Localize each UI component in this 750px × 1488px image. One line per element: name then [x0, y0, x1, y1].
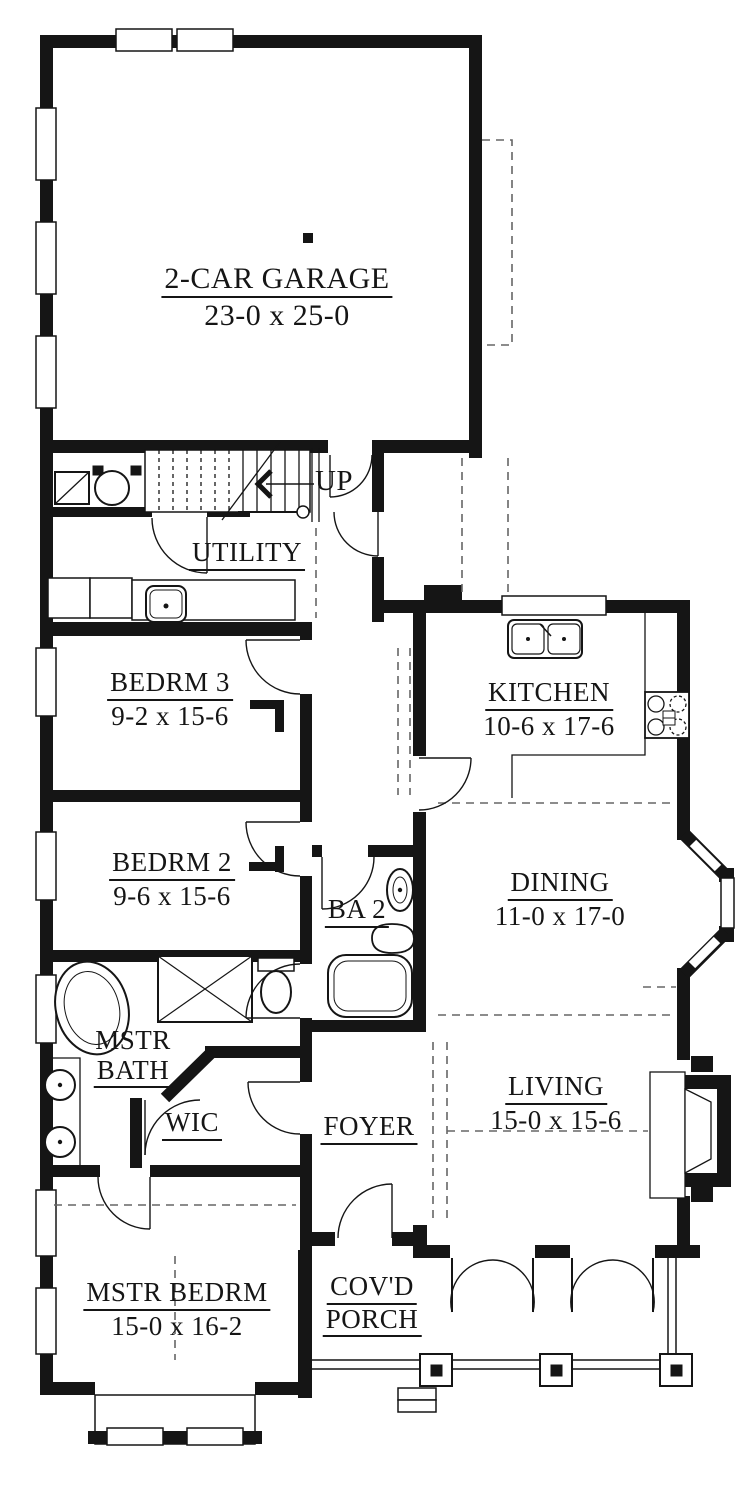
room-label-foyer: FOYER: [320, 1112, 417, 1145]
room-label-living: LIVING 15-0 x 15-6: [490, 1072, 621, 1135]
room-name: DINING: [508, 868, 613, 901]
room-label-garage: 2-CAR GARAGE 23-0 x 25-0: [161, 262, 392, 332]
room-dims: 15-0 x 16-2: [83, 1311, 270, 1342]
room-name: BA 2: [325, 895, 389, 928]
newel-post: [297, 506, 309, 518]
room-name: FOYER: [320, 1112, 417, 1145]
left-window: [36, 336, 56, 408]
washer-icon: [55, 472, 89, 504]
room-label-bedrm3: BEDRM 3 9-2 x 15-6: [107, 668, 233, 731]
room-label-ba2: BA 2: [325, 895, 389, 928]
mstr-bedrm-bay: [88, 1395, 262, 1445]
room-name-line2: PORCH: [323, 1305, 422, 1338]
left-window: [36, 108, 56, 180]
room-name: 2-CAR GARAGE: [161, 262, 392, 298]
porch-steps: [398, 1388, 436, 1412]
floor-plan-drawing: [0, 0, 750, 1488]
up-text: UP: [315, 465, 353, 497]
ba2-toilet-icon: [372, 924, 414, 953]
left-window: [36, 832, 56, 900]
room-label-mstr-bath: MSTR BATH: [94, 1026, 173, 1088]
room-dims: 10-6 x 17-6: [483, 711, 614, 742]
room-label-wic: WIC: [162, 1108, 222, 1141]
room-name: UTILITY: [189, 538, 305, 571]
mstr-toilet-icon: [258, 958, 294, 1013]
left-window: [36, 975, 56, 1043]
room-name: MSTR BEDRM: [83, 1278, 270, 1311]
room-dims: 15-0 x 15-6: [490, 1105, 621, 1136]
background: [0, 0, 750, 1488]
room-label-dining: DINING 11-0 x 17-0: [495, 868, 625, 931]
left-window: [36, 222, 56, 294]
staircase: [145, 442, 319, 522]
room-name-line2: BATH: [94, 1056, 173, 1089]
utility-sink-icon: [146, 586, 186, 622]
room-label-mstr-bedrm: MSTR BEDRM 15-0 x 16-2: [83, 1278, 270, 1341]
room-name: LIVING: [505, 1072, 607, 1105]
garage-window-top-2: [177, 29, 233, 51]
room-dims: 9-6 x 15-6: [109, 881, 235, 912]
range-icon: [645, 692, 689, 738]
kitchen-sink-icon: [508, 620, 582, 658]
room-name-line1: MSTR: [95, 1025, 171, 1055]
garage-window-top-1: [116, 29, 172, 51]
room-label-bedrm2: BEDRM 2 9-6 x 15-6: [109, 848, 235, 911]
kitchen-window: [502, 596, 606, 615]
shower-icon: [158, 956, 252, 1022]
room-dims: 9-2 x 15-6: [107, 701, 233, 732]
left-window: [36, 1288, 56, 1354]
floor-plan: 2-CAR GARAGE 23-0 x 25-0 UP UTILITY BEDR…: [0, 0, 750, 1488]
room-name: WIC: [162, 1108, 222, 1141]
room-name-line1: COV'D: [327, 1272, 417, 1305]
ba2-sink-icon: [387, 869, 413, 911]
room-name: BEDRM 3: [107, 668, 233, 701]
room-label-porch: COV'D PORCH: [323, 1272, 422, 1337]
room-label-utility: UTILITY: [189, 538, 305, 571]
stair-up-label: UP: [315, 466, 353, 498]
room-name: BEDRM 2: [109, 848, 235, 881]
left-window: [36, 1190, 56, 1256]
bay-window-center: [721, 878, 734, 928]
room-dims: 11-0 x 17-0: [495, 901, 625, 932]
left-window: [36, 648, 56, 716]
room-name: KITCHEN: [485, 678, 613, 711]
room-dims: 23-0 x 25-0: [161, 298, 392, 332]
ba2-tub-icon: [328, 955, 412, 1017]
room-label-kitchen: KITCHEN 10-6 x 17-6: [483, 678, 614, 741]
